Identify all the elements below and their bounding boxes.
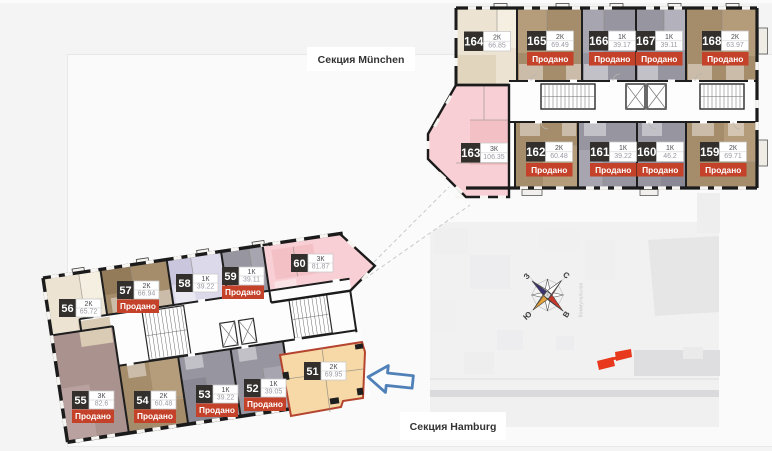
svg-text:Секция Hamburg: Секция Hamburg	[410, 421, 497, 433]
svg-text:Продано: Продано	[641, 54, 677, 64]
svg-text:46.2: 46.2	[663, 153, 677, 160]
svg-text:166: 166	[589, 36, 608, 48]
svg-text:59: 59	[224, 271, 236, 283]
svg-text:81.87: 81.87	[312, 264, 330, 271]
svg-text:2К: 2К	[729, 145, 738, 152]
svg-text:Продано: Продано	[137, 411, 173, 421]
svg-text:106.35: 106.35	[483, 154, 505, 161]
svg-text:Продано: Продано	[705, 165, 741, 175]
svg-text:2К: 2К	[330, 364, 339, 371]
svg-text:65.72: 65.72	[80, 309, 98, 316]
svg-text:39.22: 39.22	[197, 284, 215, 291]
svg-text:58: 58	[178, 278, 190, 290]
svg-text:Продано: Продано	[199, 405, 235, 415]
svg-text:69.95: 69.95	[325, 372, 343, 379]
svg-text:1К: 1К	[270, 381, 279, 388]
svg-text:1К: 1К	[222, 387, 231, 394]
svg-text:69.71: 69.71	[724, 153, 742, 160]
svg-text:1К: 1К	[665, 34, 674, 41]
svg-text:161: 161	[590, 147, 610, 159]
svg-text:66.85: 66.85	[488, 43, 506, 50]
svg-text:168: 168	[702, 36, 722, 48]
svg-text:Продано: Продано	[247, 399, 283, 409]
svg-text:Продано: Продано	[707, 54, 743, 64]
svg-text:55: 55	[74, 395, 86, 407]
svg-text:165: 165	[527, 36, 547, 48]
svg-text:60.48: 60.48	[550, 153, 568, 160]
svg-text:1К: 1К	[666, 145, 675, 152]
svg-text:53: 53	[198, 389, 210, 401]
svg-text:66.94: 66.94	[138, 291, 156, 298]
svg-text:164: 164	[464, 36, 484, 48]
svg-text:56: 56	[61, 303, 73, 315]
svg-text:Коммунальная: Коммунальная	[579, 282, 585, 317]
svg-text:Продано: Продано	[532, 54, 568, 64]
svg-text:Продано: Продано	[225, 287, 261, 297]
svg-text:2К: 2К	[731, 34, 740, 41]
svg-text:Продано: Продано	[531, 165, 567, 175]
svg-text:2К: 2К	[160, 393, 169, 400]
svg-text:57: 57	[119, 285, 131, 297]
svg-text:160: 160	[637, 147, 656, 159]
svg-text:54: 54	[136, 395, 149, 407]
svg-text:39.17: 39.17	[613, 42, 631, 49]
svg-text:2К: 2К	[143, 283, 152, 290]
svg-text:1К: 1К	[248, 269, 257, 276]
svg-text:82.6: 82.6	[95, 401, 109, 408]
svg-text:167: 167	[636, 36, 655, 48]
svg-text:3К: 3К	[98, 393, 107, 400]
svg-text:159: 159	[700, 147, 719, 159]
svg-text:163: 163	[461, 148, 480, 160]
svg-text:2К: 2К	[493, 34, 502, 41]
svg-text:Продано: Продано	[594, 54, 630, 64]
svg-text:39.11: 39.11	[243, 277, 260, 284]
svg-text:63.97: 63.97	[726, 42, 744, 49]
svg-text:Секция München: Секция München	[318, 54, 405, 66]
svg-text:69.49: 69.49	[551, 42, 569, 49]
svg-text:2К: 2К	[85, 301, 94, 308]
svg-text:Продано: Продано	[595, 165, 631, 175]
svg-text:162: 162	[526, 147, 545, 159]
svg-text:39.05: 39.05	[265, 389, 283, 396]
svg-text:1К: 1К	[618, 34, 627, 41]
svg-text:Продано: Продано	[75, 411, 111, 421]
svg-text:3К: 3К	[490, 146, 499, 153]
svg-text:2К: 2К	[555, 145, 564, 152]
svg-text:1К: 1К	[619, 145, 628, 152]
svg-text:39.11: 39.11	[661, 42, 678, 49]
svg-text:Продано: Продано	[642, 165, 678, 175]
svg-text:Продано: Продано	[120, 301, 156, 311]
svg-text:39.22: 39.22	[217, 395, 235, 402]
svg-text:52: 52	[246, 383, 258, 395]
svg-text:60.48: 60.48	[155, 401, 173, 408]
svg-text:2К: 2К	[556, 34, 565, 41]
svg-text:51: 51	[306, 366, 318, 378]
svg-text:60: 60	[293, 258, 305, 270]
svg-text:1К: 1К	[202, 276, 211, 283]
svg-text:3К: 3К	[317, 256, 326, 263]
svg-text:39.22: 39.22	[614, 153, 632, 160]
